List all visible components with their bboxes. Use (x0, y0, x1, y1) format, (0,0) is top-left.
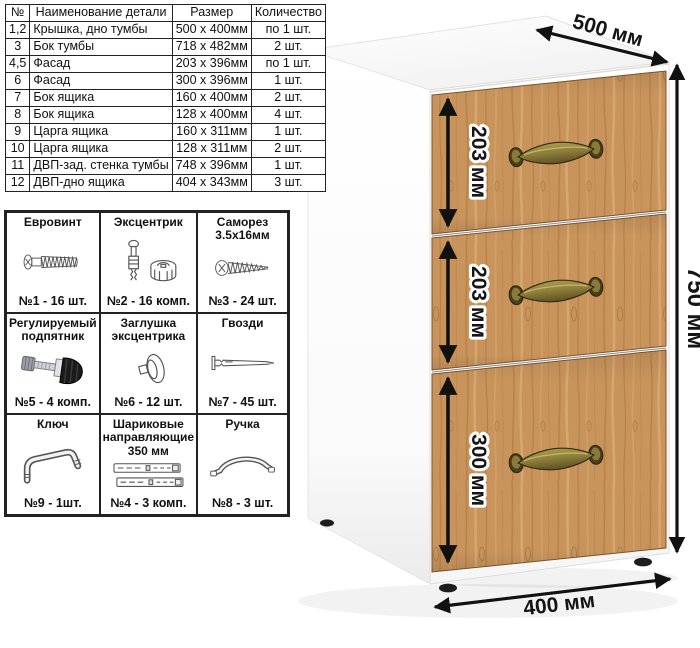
cell-qty: 2 шт. (251, 90, 325, 107)
cell-number: 1,2 (6, 22, 30, 39)
cell-name: Бок тумбы (30, 39, 172, 56)
hardware-title: Ручка (225, 418, 259, 431)
cell-qty: 3 шт. (251, 175, 325, 192)
hardware-item-bow-handle: Ручка №8 - 3 шт. (197, 414, 288, 515)
column-header-name: Наименование детали (30, 5, 172, 22)
hardware-grid: Евровинт №1 - 16 шт. Эксцентрик (4, 210, 290, 517)
hardware-title: Ключ (37, 418, 69, 431)
cell-size: 500 х 400мм (172, 22, 251, 39)
hardware-count: №8 - 3 шт. (212, 496, 273, 510)
column-header-size: Размер (172, 5, 251, 22)
hardware-count: №6 - 12 шт. (114, 395, 182, 409)
hex-key-icon (13, 431, 93, 496)
cell-number: 9 (6, 124, 30, 141)
table-row: 3 Бок тумбы 718 х 482мм 2 шт. (6, 39, 326, 56)
cam-cover-icon (113, 344, 183, 395)
bow-handle-icon (205, 431, 281, 496)
cell-number: 7 (6, 90, 30, 107)
table-row: 8 Бок ящика 128 х 400мм 4 шт. (6, 107, 326, 124)
cell-qty: 1 шт. (251, 158, 325, 175)
foot (320, 519, 334, 526)
hardware-count: №3 - 24 шт. (208, 294, 276, 308)
assembly-sheet: 500 мм 750 мм 400 мм 203 мм 203 мм 300 м… (0, 0, 700, 648)
hardware-count: №2 - 16 комп. (107, 294, 190, 308)
hardware-title: Регулируемый подпятник (9, 317, 97, 344)
cell-number: 8 (6, 107, 30, 124)
cabinet-side-panel (308, 50, 430, 584)
table-row: 12 ДВП-дно ящика 404 х 343мм 3 шт. (6, 175, 326, 192)
table-row: 1,2 Крышка, дно тумбы 500 х 400мм по 1 ш… (6, 22, 326, 39)
cell-size: 203 х 396мм (172, 56, 251, 73)
cell-name: Крышка, дно тумбы (30, 22, 172, 39)
hardware-count: №9 - 1шт. (24, 496, 82, 510)
cell-number: 4,5 (6, 56, 30, 73)
hardware-count: №1 - 16 шт. (19, 294, 87, 308)
cell-size: 128 х 400мм (172, 107, 251, 124)
ball-bearing-slides-icon (107, 458, 189, 496)
cell-size: 404 х 343мм (172, 175, 251, 192)
cell-name: Бок ящика (30, 90, 172, 107)
dimension-label-height: 750 мм (682, 267, 700, 349)
cell-number: 3 (6, 39, 30, 56)
column-header-qty: Количество (251, 5, 325, 22)
table-row: 11 ДВП-зад. стенка тумбы 748 х 396мм 1 ш… (6, 158, 326, 175)
hardware-item-hex-key: Ключ №9 - 1шт. (6, 414, 100, 515)
euro-screw-icon (12, 229, 94, 294)
cell-qty: 2 шт. (251, 141, 325, 158)
hardware-item-cam-cover: Заглушка эксцентрика №6 - 12 шт. (100, 313, 197, 414)
adjustable-foot-icon (15, 344, 91, 395)
hardware-title: Заглушка эксцентрика (103, 317, 194, 344)
cell-size: 160 х 311мм (172, 124, 251, 141)
hardware-item-adjustable-foot: Регулируемый подпятник (6, 313, 100, 414)
nail-icon (203, 330, 283, 395)
cell-name: ДВП-зад. стенка тумбы (30, 158, 172, 175)
foot (439, 584, 457, 593)
hardware-item-self-tapping-screw: Саморез 3.5х16мм №3 - 24 шт. (197, 212, 288, 313)
hardware-title: Саморез 3.5х16мм (200, 216, 285, 243)
dimension-height: 750 мм (677, 65, 700, 552)
cell-qty: 2 шт. (251, 39, 325, 56)
table-row: 9 Царга ящика 160 х 311мм 1 шт. (6, 124, 326, 141)
hardware-title: Эксцентрик (114, 216, 183, 229)
foot (634, 558, 652, 567)
parts-table: № Наименование детали Размер Количество … (5, 4, 326, 192)
cell-name: Бок ящика (30, 107, 172, 124)
cell-number: 10 (6, 141, 30, 158)
hardware-count: №5 - 4 комп. (15, 395, 91, 409)
cell-qty: 1 шт. (251, 124, 325, 141)
cell-number: 11 (6, 158, 30, 175)
hardware-title: Евровинт (24, 216, 82, 229)
dimension-label-drawer-2: 203 мм (467, 266, 490, 338)
cell-number: 12 (6, 175, 30, 192)
cell-size: 128 х 311мм (172, 141, 251, 158)
table-header-row: № Наименование детали Размер Количество (6, 5, 326, 22)
cell-number: 6 (6, 73, 30, 90)
cell-size: 160 х 400мм (172, 90, 251, 107)
cell-qty: 1 шт. (251, 73, 325, 90)
dimension-label-drawer-3: 300 мм (467, 434, 490, 506)
cell-name: Царга ящика (30, 124, 172, 141)
dimension-label-drawer-1: 203 мм (467, 126, 490, 198)
self-tapping-screw-icon (204, 243, 282, 294)
eccentric-cam-icon (107, 229, 189, 294)
hardware-count: №4 - 3 комп. (110, 496, 186, 510)
hardware-item-ball-bearing-slides: Шариковые направляющие 350 мм №4 - 3 ком… (100, 414, 197, 515)
cell-qty: 4 шт. (251, 107, 325, 124)
cell-name: Фасад (30, 73, 172, 90)
cell-qty: по 1 шт. (251, 56, 325, 73)
cell-name: ДВП-дно ящика (30, 175, 172, 192)
table-row: 7 Бок ящика 160 х 400мм 2 шт. (6, 90, 326, 107)
table-row: 4,5 Фасад 203 х 396мм по 1 шт. (6, 56, 326, 73)
hardware-title: Гвозди (222, 317, 264, 330)
hardware-item-nail: Гвозди №7 - 45 шт. (197, 313, 288, 414)
cell-size: 718 х 482мм (172, 39, 251, 56)
cell-name: Царга ящика (30, 141, 172, 158)
table-row: 6 Фасад 300 х 396мм 1 шт. (6, 73, 326, 90)
hardware-item-euro-screw: Евровинт №1 - 16 шт. (6, 212, 100, 313)
hardware-title: Шариковые направляющие 350 мм (103, 418, 194, 458)
cell-qty: по 1 шт. (251, 22, 325, 39)
column-header-number: № (6, 5, 30, 22)
hardware-count: №7 - 45 шт. (208, 395, 276, 409)
cell-name: Фасад (30, 56, 172, 73)
cell-size: 748 х 396мм (172, 158, 251, 175)
hardware-item-eccentric-cam: Эксцентрик №2 - 16 комп. (100, 212, 197, 313)
cell-size: 300 х 396мм (172, 73, 251, 90)
table-row: 10 Царга ящика 128 х 311мм 2 шт. (6, 141, 326, 158)
